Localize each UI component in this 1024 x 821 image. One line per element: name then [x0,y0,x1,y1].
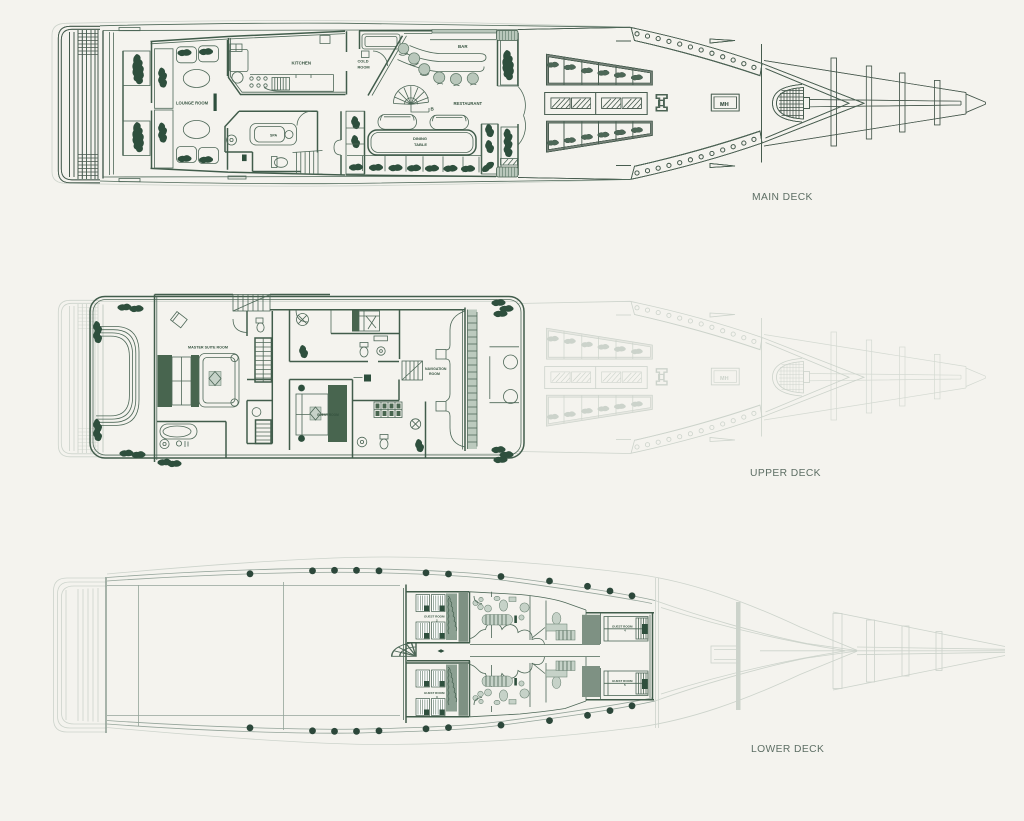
svg-text:TABLE: TABLE [414,142,427,147]
svg-text:NAVIGATION: NAVIGATION [425,367,447,371]
svg-text:GUEST ROOM: GUEST ROOM [317,413,339,417]
svg-text:ROOM: ROOM [358,65,370,70]
svg-text:DINING: DINING [413,136,427,141]
svg-text:GUEST ROOM: GUEST ROOM [612,679,633,683]
svg-text:KITCHEN: KITCHEN [292,61,312,66]
svg-text:UPPER DECK: UPPER DECK [750,468,821,479]
svg-text:LOWER DECK: LOWER DECK [751,744,824,755]
svg-text:SPA: SPA [270,134,278,138]
svg-text:GUEST ROOM: GUEST ROOM [424,615,445,619]
svg-text:LOUNGE ROOM: LOUNGE ROOM [176,101,209,106]
svg-text:MASTER SUITE ROOM: MASTER SUITE ROOM [188,346,228,350]
svg-text:RESTAURANT: RESTAURANT [454,101,483,106]
svg-text:GUEST ROOM: GUEST ROOM [612,625,633,629]
svg-text:COLD: COLD [358,59,369,64]
svg-text:ROOM: ROOM [429,372,440,376]
svg-text:BAR: BAR [458,44,468,49]
svg-text:MAIN DECK: MAIN DECK [752,192,813,203]
svg-text:GUEST ROOM: GUEST ROOM [424,691,445,695]
